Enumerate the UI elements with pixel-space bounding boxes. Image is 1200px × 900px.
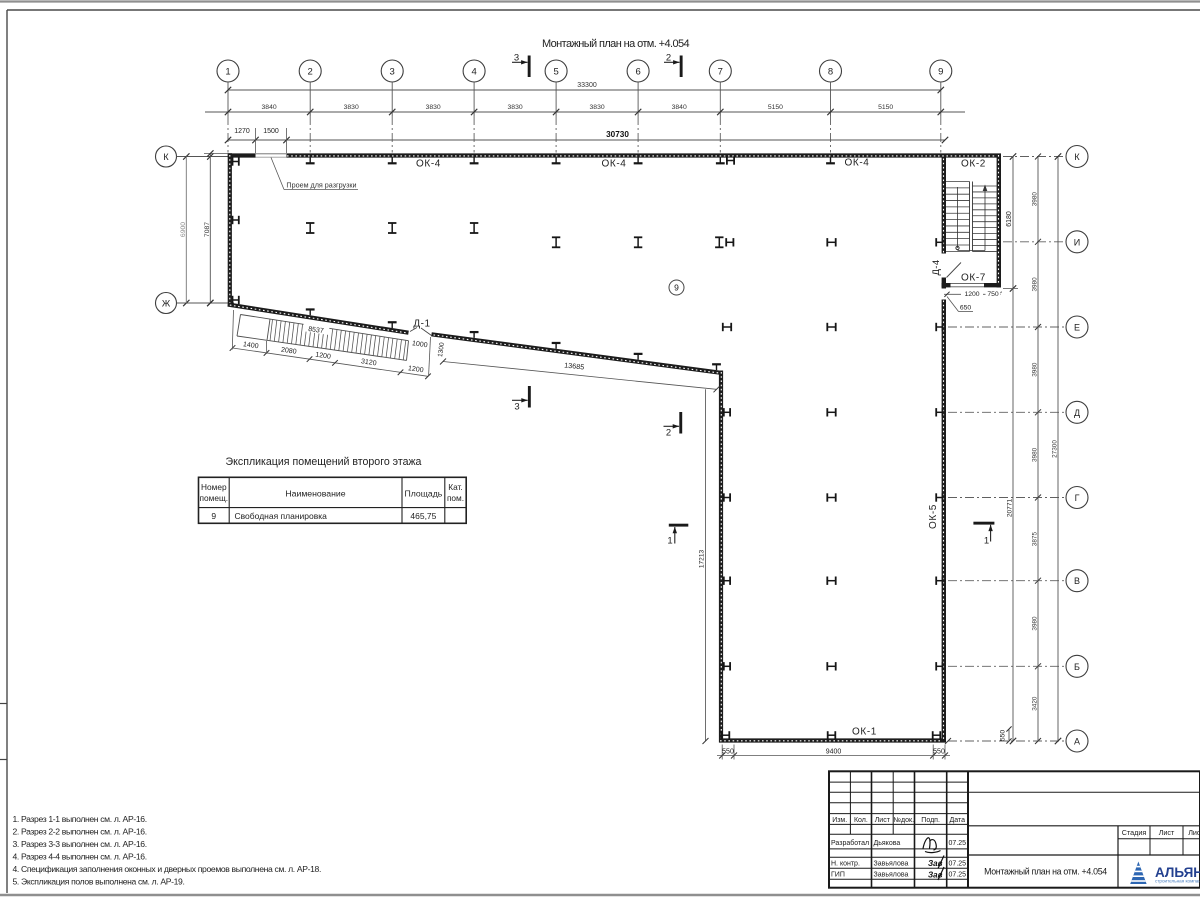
svg-text:№док.: №док. xyxy=(894,817,915,824)
svg-text:9: 9 xyxy=(938,67,943,78)
svg-text:Номер: Номер xyxy=(201,482,227,492)
svg-text:Завьялова: Завьялова xyxy=(874,872,909,879)
svg-text:В: В xyxy=(1074,576,1080,586)
svg-text:3830: 3830 xyxy=(508,104,523,111)
svg-text:17213: 17213 xyxy=(699,550,706,569)
svg-text:550: 550 xyxy=(722,749,734,756)
svg-text:30730: 30730 xyxy=(606,130,629,139)
svg-text:1270: 1270 xyxy=(234,128,250,135)
svg-text:ОК-1: ОК-1 xyxy=(852,727,877,738)
svg-text:ОК-4: ОК-4 xyxy=(602,159,627,170)
svg-text:6900: 6900 xyxy=(180,222,187,237)
svg-text:20771: 20771 xyxy=(1007,499,1014,518)
svg-text:Наименование: Наименование xyxy=(285,488,345,498)
svg-text:3840: 3840 xyxy=(262,104,277,111)
svg-text:3980: 3980 xyxy=(1032,277,1039,292)
svg-text:Г: Г xyxy=(1075,493,1080,503)
svg-text:Ж: Ж xyxy=(162,299,171,309)
svg-text:Монтажный план на отм. +4.054: Монтажный план на отм. +4.054 xyxy=(542,38,690,50)
svg-text:2: 2 xyxy=(666,53,671,64)
svg-text:3830: 3830 xyxy=(426,104,441,111)
svg-text:1: 1 xyxy=(225,67,230,78)
svg-text:6: 6 xyxy=(635,67,640,78)
svg-text:5: 5 xyxy=(553,67,558,78)
svg-text:Монтажный план на отм. +4.054: Монтажный план на отм. +4.054 xyxy=(984,867,1107,877)
svg-text:ОК-4: ОК-4 xyxy=(845,158,870,169)
svg-text:7: 7 xyxy=(718,67,723,78)
svg-text:3. Разрез 3-3 выполнен см. л.: 3. Разрез 3-3 выполнен см. л. АР-16. xyxy=(13,839,147,849)
svg-text:Дата: Дата xyxy=(950,817,966,824)
svg-text:Площадь: Площадь xyxy=(404,488,442,498)
svg-text:Стадия: Стадия xyxy=(1122,828,1147,837)
svg-text:3: 3 xyxy=(514,53,519,64)
svg-text:Кат.: Кат. xyxy=(448,482,462,492)
svg-text:5150: 5150 xyxy=(878,104,893,111)
svg-text:Завьялова: Завьялова xyxy=(874,861,909,868)
svg-text:Свободная планировка: Свободная планировка xyxy=(235,511,328,521)
svg-text:Е: Е xyxy=(1074,323,1080,333)
svg-text:Дьякова: Дьякова xyxy=(874,840,901,847)
svg-text:Кол.: Кол. xyxy=(854,817,868,824)
svg-text:строительная компания: строительная компания xyxy=(1155,879,1200,884)
svg-text:Лист: Лист xyxy=(1188,828,1200,837)
svg-text:750: 750 xyxy=(987,291,999,298)
svg-text:Лист: Лист xyxy=(875,817,891,824)
svg-text:4. Спецификация заполнения око: 4. Спецификация заполнения оконных и две… xyxy=(13,864,322,874)
svg-text:Проем для разгрузки: Проем для разгрузки xyxy=(286,181,356,190)
svg-text:8: 8 xyxy=(828,67,833,78)
svg-text:2. Разрез 2-2 выполнен см. л.: 2. Разрез 2-2 выполнен см. л. АР-16. xyxy=(13,827,147,837)
svg-text:Д-1: Д-1 xyxy=(413,319,430,330)
svg-text:3980: 3980 xyxy=(1032,192,1039,207)
svg-text:1: 1 xyxy=(984,536,989,547)
svg-text:Н. контр.: Н. контр. xyxy=(831,861,860,868)
svg-text:Б: Б xyxy=(1074,662,1080,672)
svg-text:Экспликация помещений второго: Экспликация помещений второго этажа xyxy=(226,456,422,468)
svg-text:5150: 5150 xyxy=(768,104,783,111)
svg-text:ГИП: ГИП xyxy=(831,872,845,879)
svg-text:К: К xyxy=(163,152,169,162)
svg-text:1200: 1200 xyxy=(964,291,979,298)
svg-text:К: К xyxy=(1074,152,1080,162)
svg-text:1500: 1500 xyxy=(263,128,279,135)
svg-text:33300: 33300 xyxy=(577,82,597,89)
svg-text:3: 3 xyxy=(390,67,395,78)
svg-text:1. Разрез 1-1 выполнен см. л.: 1. Разрез 1-1 выполнен см. л. АР-16. xyxy=(13,814,147,824)
svg-text:Д-4: Д-4 xyxy=(931,259,942,275)
svg-text:3830: 3830 xyxy=(590,104,605,111)
svg-text:9: 9 xyxy=(674,283,679,293)
svg-text:465,75: 465,75 xyxy=(410,511,436,521)
svg-text:3: 3 xyxy=(514,402,519,413)
svg-text:Д: Д xyxy=(1074,408,1080,418)
svg-text:Подп.: Подп. xyxy=(921,817,940,824)
svg-text:6180: 6180 xyxy=(1006,211,1013,227)
svg-text:4: 4 xyxy=(471,67,476,78)
svg-text:3980: 3980 xyxy=(1032,616,1039,631)
svg-text:650: 650 xyxy=(960,305,972,312)
svg-text:550: 550 xyxy=(933,749,945,756)
svg-text:4. Разрез 4-4 выполнен см. л.: 4. Разрез 4-4 выполнен см. л. АР-16. xyxy=(13,852,147,862)
svg-text:07.25: 07.25 xyxy=(949,840,967,847)
svg-text:07.25: 07.25 xyxy=(949,861,967,868)
svg-text:27300: 27300 xyxy=(1052,440,1059,458)
svg-text:7087: 7087 xyxy=(204,222,211,237)
svg-text:пом.: пом. xyxy=(447,493,464,503)
svg-text:3420: 3420 xyxy=(1032,696,1039,711)
svg-text:5. Экспликация полов выполнена: 5. Экспликация полов выполнена см. л. АР… xyxy=(13,877,185,887)
svg-text:Разработал: Разработал xyxy=(831,839,869,847)
svg-text:А: А xyxy=(1074,737,1080,747)
svg-text:2: 2 xyxy=(308,67,313,78)
svg-text:И: И xyxy=(1074,237,1080,247)
svg-text:ОК-5: ОК-5 xyxy=(928,504,939,529)
svg-text:3840: 3840 xyxy=(672,104,687,111)
svg-text:ОК-7: ОК-7 xyxy=(961,273,986,284)
svg-text:3980: 3980 xyxy=(1032,447,1039,462)
svg-text:1: 1 xyxy=(667,536,672,547)
svg-text:3875: 3875 xyxy=(1032,532,1039,547)
svg-text:3980: 3980 xyxy=(1032,362,1039,377)
svg-text:9400: 9400 xyxy=(826,749,842,756)
svg-text:07.25: 07.25 xyxy=(949,872,967,879)
svg-text:2: 2 xyxy=(666,428,671,439)
svg-text:ОК-2: ОК-2 xyxy=(961,159,986,170)
svg-text:Изм.: Изм. xyxy=(832,817,847,824)
svg-text:9: 9 xyxy=(211,511,216,521)
svg-text:помещ.: помещ. xyxy=(200,493,229,503)
svg-text:Лист: Лист xyxy=(1159,828,1175,837)
svg-text:550: 550 xyxy=(1000,730,1007,742)
svg-text:3830: 3830 xyxy=(344,104,359,111)
svg-text:ОК-4: ОК-4 xyxy=(416,159,441,170)
